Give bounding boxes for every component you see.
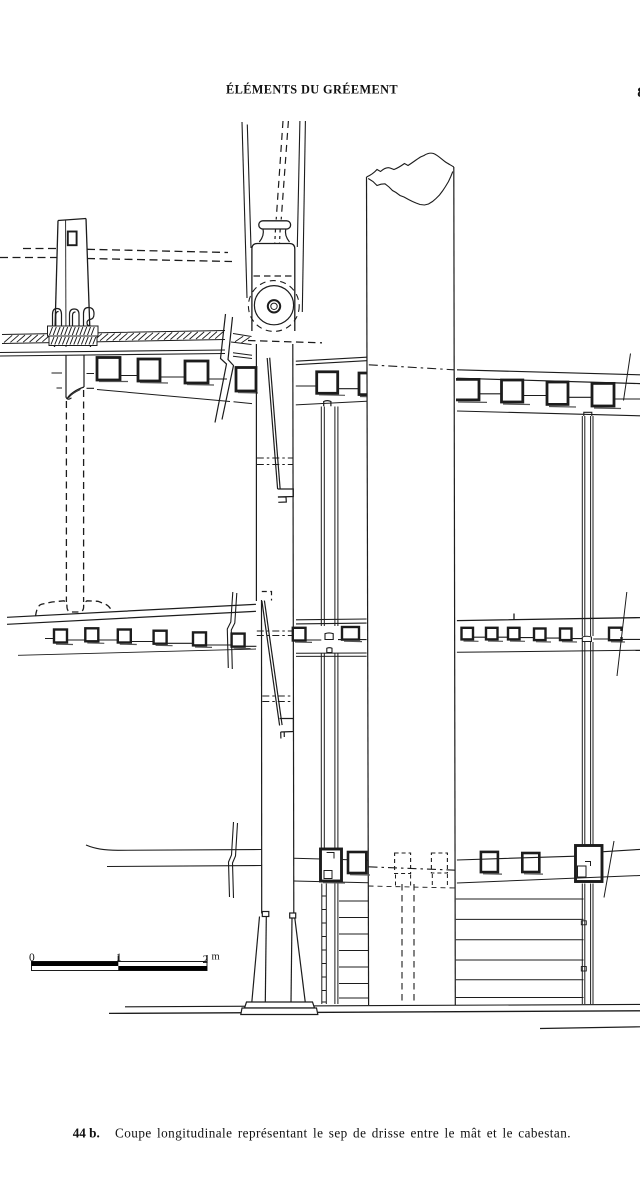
svg-text:0: 0 — [29, 952, 35, 964]
svg-text:2: 2 — [203, 954, 209, 966]
svg-text:ÉLÉMENTS DU GRÉEMENT: ÉLÉMENTS DU GRÉEMENT — [226, 83, 398, 97]
svg-text:Coupe longitudinale représenta: Coupe longitudinale représentant le sep … — [115, 1125, 571, 1140]
svg-text:44 b.: 44 b. — [73, 1125, 100, 1140]
svg-text:1: 1 — [116, 952, 122, 964]
svg-text:m: m — [212, 952, 220, 963]
